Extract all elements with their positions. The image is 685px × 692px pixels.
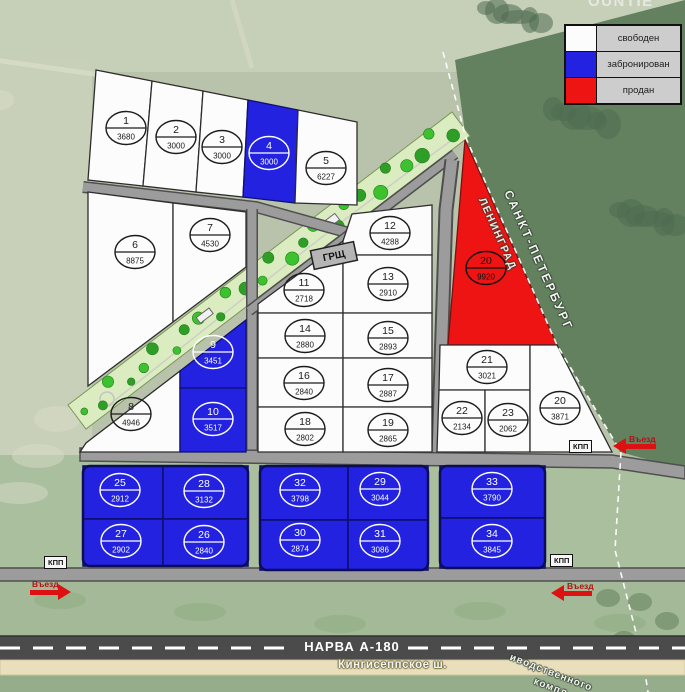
plot-10-label: 103517 xyxy=(193,403,233,436)
svg-text:8875: 8875 xyxy=(126,257,144,266)
tree-icon xyxy=(380,163,390,173)
plot-27-shape xyxy=(83,519,163,566)
svg-text:4946: 4946 xyxy=(122,419,140,428)
plot-6-label: 68875 xyxy=(115,236,155,269)
plot-7-label: 74530 xyxy=(190,219,230,252)
plot-20-label: 203871 xyxy=(540,392,580,425)
plot-22-shape xyxy=(437,390,485,452)
legend-row-sold: продан xyxy=(566,78,680,103)
svg-text:2840: 2840 xyxy=(195,547,213,556)
svg-text:32: 32 xyxy=(294,477,306,489)
plot-33-shape xyxy=(440,466,545,518)
entrance-arrow-icon xyxy=(564,591,592,596)
plot-33-label: 333790 xyxy=(472,473,512,506)
checkpoint-label: КПП xyxy=(550,554,573,567)
plot-13-label: 132910 xyxy=(368,268,408,301)
plot-3-label: 33000 xyxy=(202,131,242,164)
tree-icon xyxy=(127,378,135,386)
svg-text:2880: 2880 xyxy=(296,341,314,350)
svg-text:2874: 2874 xyxy=(291,545,309,554)
plot-25-label: 252912 xyxy=(100,474,140,507)
legend-label-reserved: забронирован xyxy=(597,52,680,77)
tree-icon xyxy=(447,129,460,142)
plot-4-label: 43000 xyxy=(249,137,289,170)
svg-text:20: 20 xyxy=(554,395,566,407)
svg-text:2062: 2062 xyxy=(499,425,517,434)
plot-9-label: 93451 xyxy=(193,336,233,369)
plot-14-label: 142880 xyxy=(285,320,325,353)
svg-text:3132: 3132 xyxy=(195,496,213,505)
svg-text:2910: 2910 xyxy=(379,289,397,298)
checkpoint-label: КПП xyxy=(569,440,592,453)
svg-text:2902: 2902 xyxy=(112,546,130,555)
tree-icon xyxy=(286,252,299,265)
entrance-marker-right-bottom: Въезд xyxy=(551,581,611,607)
svg-text:19: 19 xyxy=(382,417,394,429)
entrance-arrow-icon xyxy=(626,444,656,449)
plot-12-label: 124288 xyxy=(370,217,410,250)
entrance-arrow-icon xyxy=(30,590,58,595)
entrance-marker-left: Въезд xyxy=(30,579,105,605)
svg-text:9920: 9920 xyxy=(477,273,495,282)
svg-text:6227: 6227 xyxy=(317,173,335,182)
entrance-label: Въезд xyxy=(629,434,656,444)
checkpoint-label: КПП xyxy=(44,556,67,569)
highway-label: НАРВА А-180 xyxy=(292,639,412,654)
tree-icon xyxy=(401,160,413,172)
svg-text:2: 2 xyxy=(173,124,179,136)
svg-text:3086: 3086 xyxy=(371,546,389,555)
svg-text:3517: 3517 xyxy=(204,424,222,433)
entrance-label: Въезд xyxy=(567,581,594,591)
svg-text:15: 15 xyxy=(382,325,394,337)
entrance-marker-right-mid: Въезд xyxy=(613,434,673,460)
legend-row-free: свободен xyxy=(566,26,680,52)
legend: свободен забронирован продан xyxy=(564,24,682,105)
svg-text:2893: 2893 xyxy=(379,343,397,352)
entrance-arrow-icon xyxy=(613,438,626,454)
svg-text:2134: 2134 xyxy=(453,423,471,432)
svg-text:14: 14 xyxy=(299,323,311,335)
svg-text:3044: 3044 xyxy=(371,494,389,503)
plot-28-label: 283132 xyxy=(184,475,224,508)
svg-text:26: 26 xyxy=(198,529,210,541)
tree-icon xyxy=(216,313,225,322)
entrance-arrow-icon xyxy=(551,585,564,601)
legend-label-free: свободен xyxy=(597,26,680,51)
plot-21-label: 213021 xyxy=(467,351,507,384)
svg-text:8: 8 xyxy=(128,401,134,413)
svg-text:29: 29 xyxy=(374,476,386,488)
tree-icon xyxy=(81,408,88,415)
plot-29-label: 293044 xyxy=(360,473,400,506)
svg-text:3871: 3871 xyxy=(551,413,569,422)
plot-34-shape xyxy=(440,518,545,568)
svg-text:2865: 2865 xyxy=(379,435,397,444)
tree-icon xyxy=(415,148,430,163)
svg-text:2912: 2912 xyxy=(111,495,129,504)
plot-27-label: 272902 xyxy=(101,525,141,558)
tree-icon xyxy=(299,238,309,248)
svg-text:5: 5 xyxy=(323,155,329,167)
entrance-arrow-icon xyxy=(58,584,71,600)
entrance-label: Въезд xyxy=(32,579,59,589)
svg-text:4: 4 xyxy=(266,140,272,152)
svg-text:3000: 3000 xyxy=(260,158,278,167)
svg-text:18: 18 xyxy=(299,416,311,428)
plot-16-label: 162840 xyxy=(284,367,324,400)
plot-18-label: 182802 xyxy=(285,413,325,446)
plot-23-shape xyxy=(485,390,530,452)
svg-text:6: 6 xyxy=(132,239,138,251)
svg-text:33: 33 xyxy=(486,476,498,488)
svg-text:31: 31 xyxy=(374,528,386,540)
svg-text:3680: 3680 xyxy=(117,133,135,142)
tree-icon xyxy=(102,376,113,387)
plot-31-label: 313086 xyxy=(360,525,400,558)
svg-text:13: 13 xyxy=(382,271,394,283)
plot-19-label: 192865 xyxy=(368,414,408,447)
plot-23-label: 232062 xyxy=(488,404,528,437)
svg-text:34: 34 xyxy=(486,528,498,540)
svg-text:2887: 2887 xyxy=(379,390,397,399)
plot-15-label: 152893 xyxy=(368,322,408,355)
plot-2-label: 23000 xyxy=(156,121,196,154)
svg-text:27: 27 xyxy=(115,528,127,540)
svg-text:10: 10 xyxy=(207,406,219,418)
plot-32-label: 323798 xyxy=(280,474,320,507)
svg-text:30: 30 xyxy=(294,527,306,539)
tree-icon xyxy=(146,343,158,355)
plot-22-label: 222134 xyxy=(442,402,482,435)
plot-11-label: 112718 xyxy=(284,274,324,307)
dirt-track xyxy=(0,60,100,75)
tree-icon xyxy=(139,363,149,373)
svg-text:23: 23 xyxy=(502,407,514,419)
tree-icon xyxy=(258,276,267,285)
tree-icon xyxy=(220,287,231,298)
svg-text:7: 7 xyxy=(207,222,213,234)
svg-text:3845: 3845 xyxy=(483,546,501,555)
tree-icon xyxy=(98,401,107,410)
plot-5-label: 56227 xyxy=(306,152,346,185)
plot-10-shape xyxy=(180,388,246,452)
svg-text:11: 11 xyxy=(299,277,310,289)
plot-30-label: 302874 xyxy=(280,524,320,557)
svg-text:16: 16 xyxy=(298,370,310,382)
legend-swatch-reserved xyxy=(566,52,597,77)
plot-34-label: 343845 xyxy=(472,525,512,558)
legend-swatch-sold xyxy=(566,78,597,103)
watermark: OUNTIE xyxy=(588,0,654,10)
svg-text:20: 20 xyxy=(480,255,492,267)
plot-17-label: 172887 xyxy=(368,369,408,402)
svg-text:17: 17 xyxy=(382,372,394,384)
svg-text:2840: 2840 xyxy=(295,388,313,397)
tree-icon xyxy=(173,347,181,355)
svg-text:3451: 3451 xyxy=(204,357,222,366)
road-name-label: Кингисеппское ш. xyxy=(338,659,447,671)
legend-swatch-free xyxy=(566,26,597,51)
svg-text:3000: 3000 xyxy=(167,142,185,151)
tree-icon xyxy=(179,325,189,335)
svg-text:4530: 4530 xyxy=(201,240,219,249)
svg-text:4288: 4288 xyxy=(381,238,399,247)
tree-icon xyxy=(263,252,274,263)
svg-text:2802: 2802 xyxy=(296,434,314,443)
svg-text:3790: 3790 xyxy=(483,494,501,503)
plot-1-label: 13680 xyxy=(106,112,146,145)
dirt-track-2 xyxy=(232,0,252,68)
plot-8-label: 84946 xyxy=(111,398,151,431)
svg-text:2718: 2718 xyxy=(295,295,313,304)
svg-text:21: 21 xyxy=(481,354,493,366)
plot-26-label: 262840 xyxy=(184,526,224,559)
svg-text:12: 12 xyxy=(384,220,396,232)
plot-map: 1368023000330004300056227688757453084946… xyxy=(0,0,685,692)
legend-label-sold: продан xyxy=(597,78,680,103)
svg-text:9: 9 xyxy=(210,339,216,351)
svg-text:22: 22 xyxy=(456,405,468,417)
svg-text:1: 1 xyxy=(123,115,129,127)
svg-text:3798: 3798 xyxy=(291,495,309,504)
svg-text:3000: 3000 xyxy=(213,152,231,161)
svg-text:28: 28 xyxy=(198,478,210,490)
svg-text:3: 3 xyxy=(219,134,225,146)
tree-icon xyxy=(424,129,435,140)
legend-row-reserved: забронирован xyxy=(566,52,680,78)
tree-icon xyxy=(374,185,388,199)
svg-text:3021: 3021 xyxy=(478,372,496,381)
svg-text:25: 25 xyxy=(114,477,126,489)
